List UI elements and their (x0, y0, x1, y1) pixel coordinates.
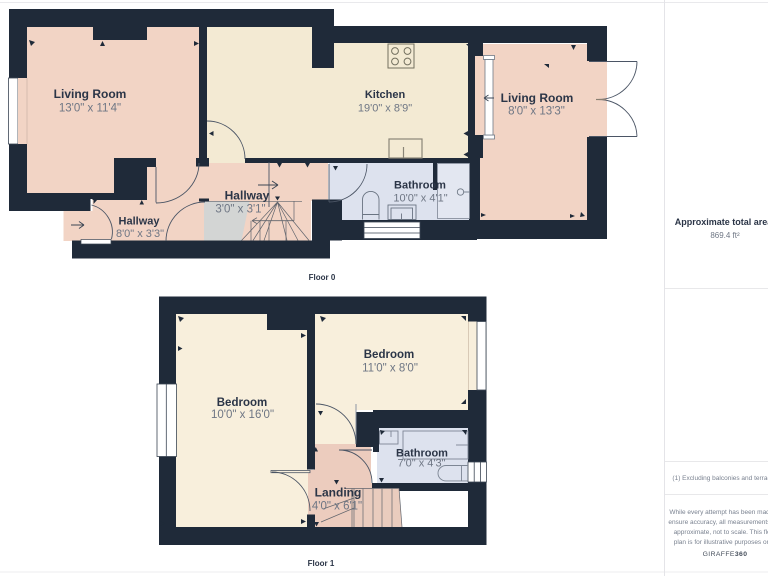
svg-text:10'0" x 16'0": 10'0" x 16'0" (211, 409, 274, 421)
svg-text:10'0" x 4'1": 10'0" x 4'1" (393, 193, 447, 205)
svg-text:3'0" x 3'1": 3'0" x 3'1" (215, 204, 265, 216)
svg-text:19'0" x 8'9": 19'0" x 8'9" (358, 103, 412, 115)
svg-text:ensure accuracy, all measureme: ensure accuracy, all measurements are (668, 519, 768, 526)
svg-text:GIRAFFE360: GIRAFFE360 (703, 551, 748, 558)
svg-text:Floor 1: Floor 1 (308, 559, 335, 568)
svg-text:Living Room: Living Room (501, 91, 574, 105)
svg-text:8'0" x 3'3": 8'0" x 3'3" (116, 228, 164, 240)
svg-text:Kitchen: Kitchen (365, 89, 406, 101)
svg-text:Bathroom: Bathroom (394, 180, 446, 192)
svg-text:Approximate total area¹: Approximate total area¹ (675, 217, 768, 227)
svg-text:Living Room: Living Room (54, 87, 127, 101)
svg-text:plan is for illustrative purpo: plan is for illustrative purposes only. (674, 539, 768, 546)
svg-text:4'0" x 6'1": 4'0" x 6'1" (312, 501, 362, 513)
svg-text:869.4 ft²: 869.4 ft² (710, 231, 740, 240)
svg-text:Bedroom: Bedroom (217, 397, 267, 409)
svg-text:While every attempt has been m: While every attempt has been made to (669, 509, 768, 516)
svg-text:Landing: Landing (315, 486, 362, 500)
svg-text:Floor 0: Floor 0 (309, 273, 336, 282)
svg-text:Hallway: Hallway (225, 189, 270, 203)
svg-text:approximate, not to scale. Thi: approximate, not to scale. This floor (674, 529, 768, 536)
svg-text:8'0" x 13'3": 8'0" x 13'3" (508, 106, 565, 118)
svg-text:13'0" x 11'4": 13'0" x 11'4" (59, 103, 121, 115)
svg-text:Bedroom: Bedroom (364, 349, 414, 361)
svg-text:Hallway: Hallway (119, 216, 161, 228)
svg-text:(1) Excluding balconies and te: (1) Excluding balconies and terraces (672, 475, 768, 482)
svg-text:11'0" x 8'0": 11'0" x 8'0" (362, 363, 418, 375)
svg-text:7'0" x 4'3": 7'0" x 4'3" (397, 458, 445, 470)
